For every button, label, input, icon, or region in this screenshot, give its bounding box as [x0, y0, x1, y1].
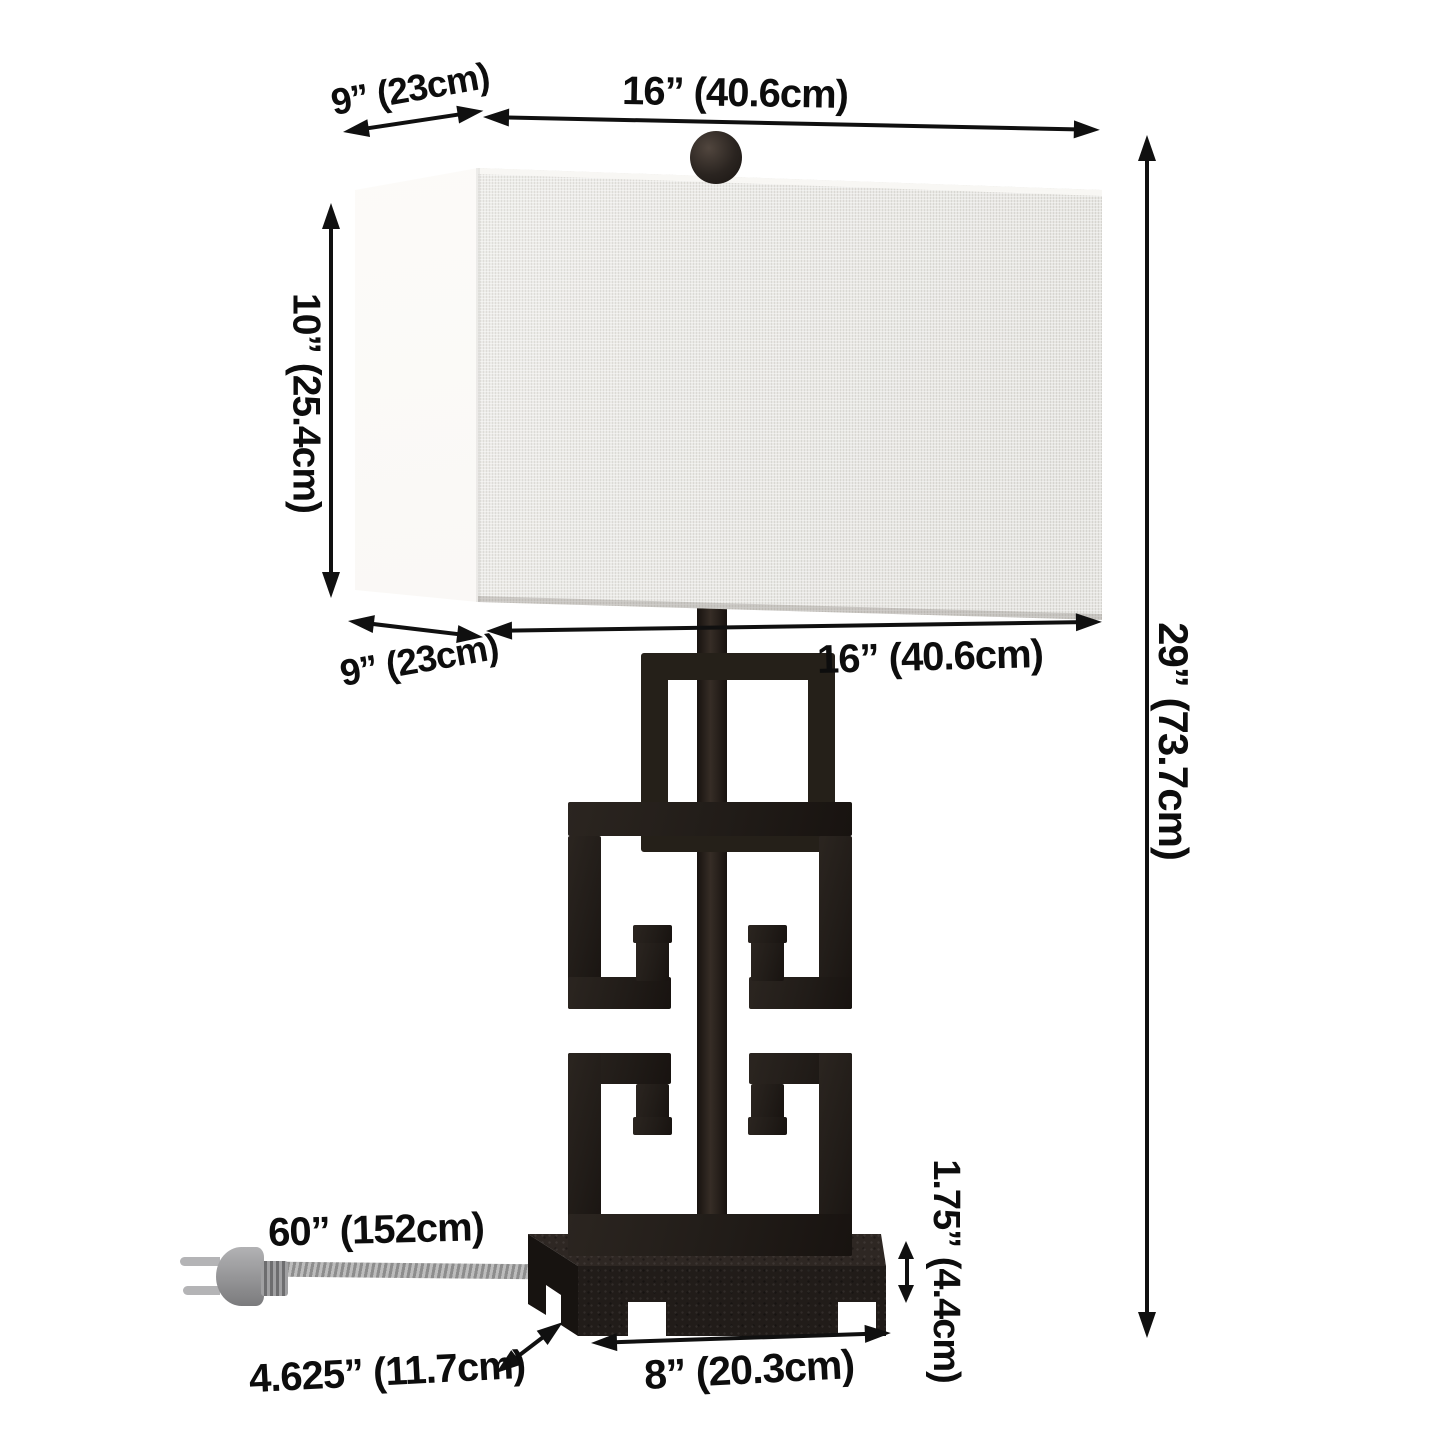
dim-label-cord-length: 60” (152cm) [268, 1207, 485, 1253]
dimension-diagram-canvas: 9” (23cm) 16” (40.6cm) 10” (25.4cm) 9” (… [0, 0, 1445, 1445]
body-top-bar [568, 802, 852, 836]
finial-ball [690, 131, 742, 184]
lower-left-scroll-stub [636, 1084, 669, 1120]
upper-right-scroll-stub [751, 941, 784, 981]
upper-left-scroll-cap [633, 925, 672, 943]
plug-prong-bottom [183, 1286, 220, 1295]
plug-body [216, 1247, 264, 1306]
lower-right-scroll-cap [748, 1117, 787, 1135]
dim-label-shade-height: 10” (25.4cm) [287, 293, 326, 513]
upper-left-horizontal [568, 977, 671, 1009]
dim-label-shade-width-top: 16” (40.6cm) [622, 71, 849, 115]
power-cord [278, 1262, 540, 1280]
lower-right-scroll-stub [751, 1084, 784, 1120]
dim-arrow-base-height [898, 1241, 916, 1303]
dim-label-base-width: 8” (20.3cm) [643, 1344, 855, 1396]
body-bottom-bar [568, 1214, 852, 1256]
plug-strain-relief [261, 1261, 288, 1296]
plug-prong-top [180, 1257, 220, 1266]
upper-right-scroll-cap [748, 925, 787, 943]
upper-left-scroll-stub [636, 941, 669, 981]
lower-left-scroll-cap [633, 1117, 672, 1135]
dim-label-base-height: 1.75” (4.4cm) [927, 1159, 965, 1383]
dim-label-base-depth: 4.625” (11.7cm) [248, 1345, 526, 1399]
upper-right-horizontal [749, 977, 852, 1009]
dim-label-total-height: 29” (73.7cm) [1152, 622, 1194, 860]
dim-label-shade-width-bottom: 16” (40.6cm) [817, 634, 1044, 680]
